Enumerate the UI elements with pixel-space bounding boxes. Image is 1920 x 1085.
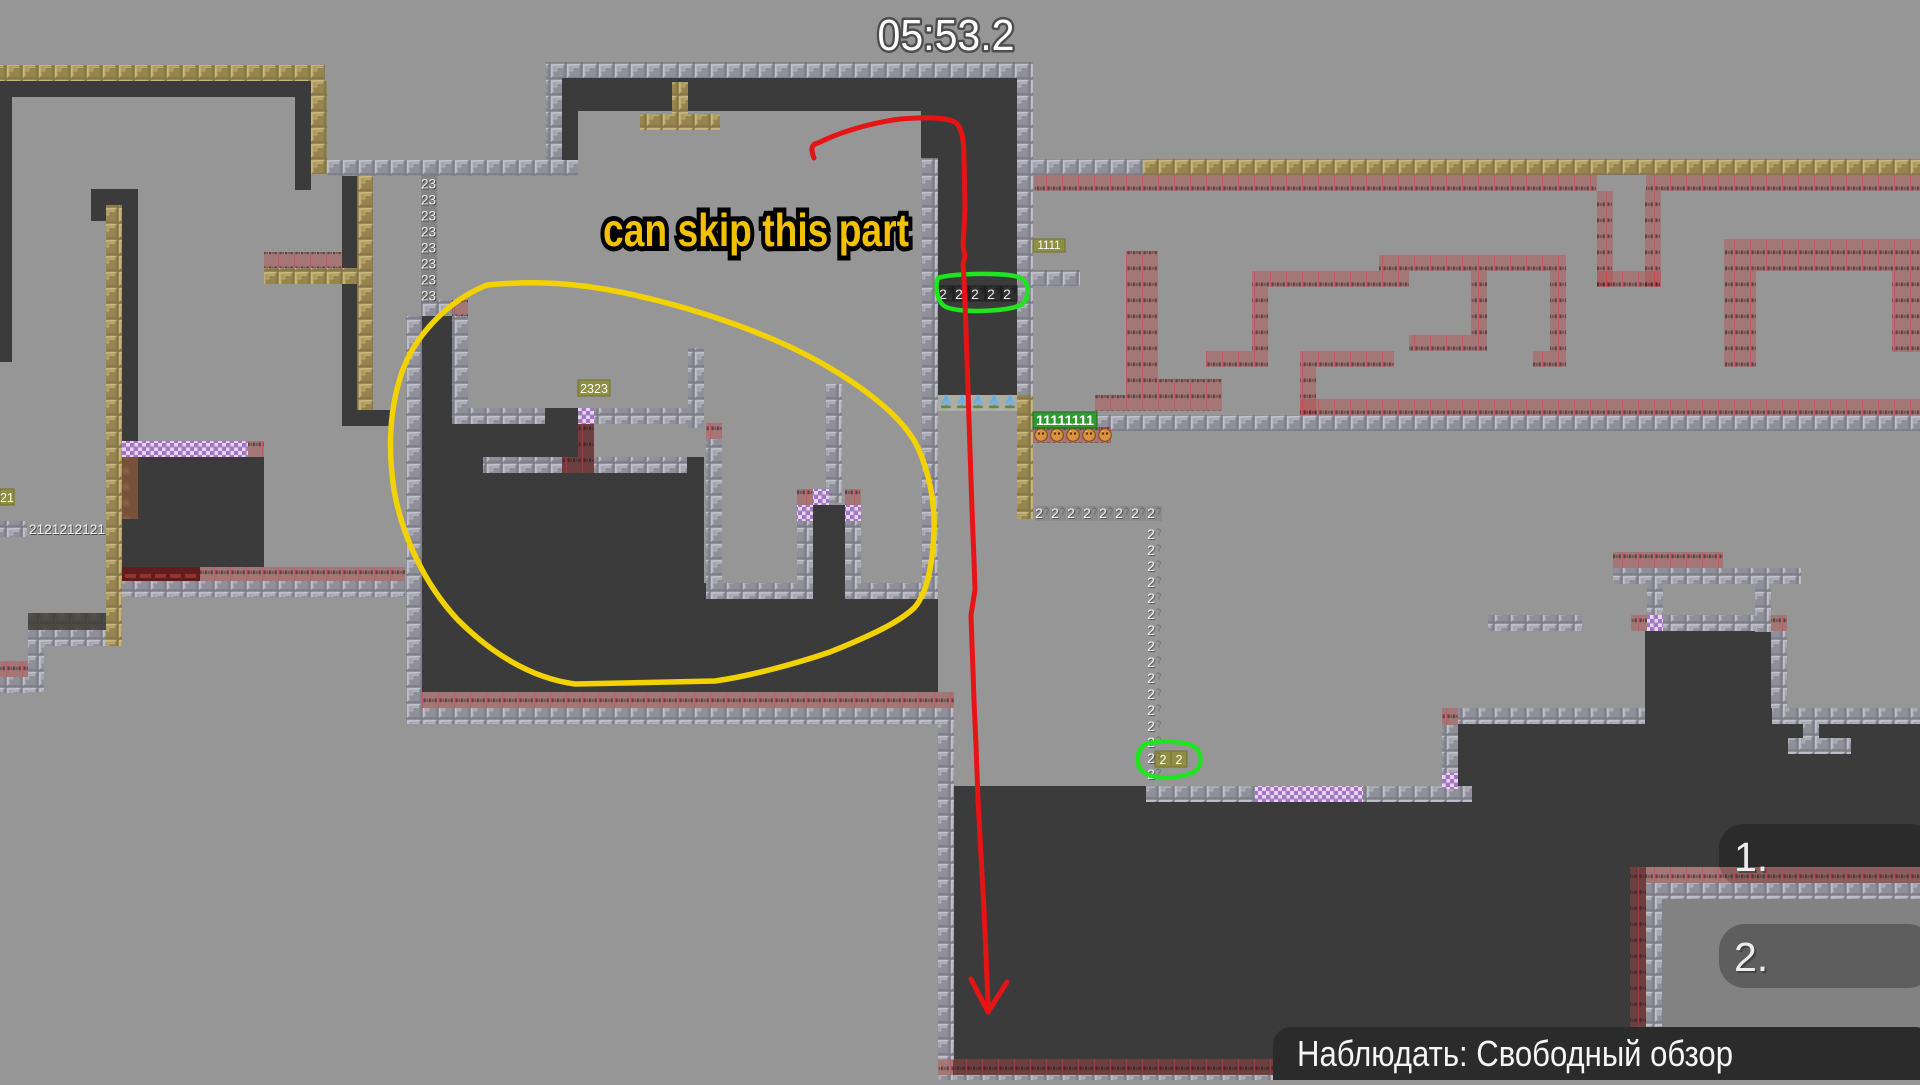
svg-text:2: 2 xyxy=(1067,505,1075,521)
svg-text:2: 2 xyxy=(1147,606,1155,622)
svg-text:2: 2 xyxy=(1051,505,1059,521)
svg-text:2: 2 xyxy=(971,286,979,302)
svg-text:2: 2 xyxy=(1083,505,1091,521)
svg-text:2: 2 xyxy=(1147,622,1155,638)
svg-text:2: 2 xyxy=(1003,286,1011,302)
svg-text:21: 21 xyxy=(0,491,14,505)
svg-text:2: 2 xyxy=(1147,702,1155,718)
svg-text:2: 2 xyxy=(1147,574,1155,590)
svg-text:1.: 1. xyxy=(1734,834,1768,880)
svg-text:23: 23 xyxy=(421,289,436,304)
svg-text:23: 23 xyxy=(421,225,436,240)
svg-text:2: 2 xyxy=(1131,505,1139,521)
svg-text:2: 2 xyxy=(1147,590,1155,606)
svg-text:11111111: 11111111 xyxy=(1036,413,1095,428)
svg-text:23: 23 xyxy=(421,273,436,288)
svg-text:2121212121: 2121212121 xyxy=(29,522,105,537)
svg-text:2: 2 xyxy=(1147,526,1155,542)
svg-text:2: 2 xyxy=(1147,718,1155,734)
svg-text:2: 2 xyxy=(987,286,995,302)
svg-text:2: 2 xyxy=(1035,505,1043,521)
svg-text:23: 23 xyxy=(421,209,436,224)
svg-text:23: 23 xyxy=(421,257,436,272)
svg-text:23: 23 xyxy=(421,241,436,256)
svg-text:23: 23 xyxy=(421,193,436,208)
svg-text:2: 2 xyxy=(1176,753,1183,767)
svg-text:2: 2 xyxy=(1147,750,1155,766)
svg-text:1111: 1111 xyxy=(1037,240,1060,252)
svg-text:can skip this part: can skip this part xyxy=(603,204,909,256)
svg-text:2: 2 xyxy=(1147,542,1155,558)
svg-text:Наблюдать: Свободный обзор: Наблюдать: Свободный обзор xyxy=(1297,1033,1733,1074)
svg-text:2: 2 xyxy=(1147,558,1155,574)
svg-text:2: 2 xyxy=(1147,670,1155,686)
svg-text:23: 23 xyxy=(421,177,436,192)
svg-text:2: 2 xyxy=(1099,505,1107,521)
svg-text:2323: 2323 xyxy=(580,382,608,396)
svg-text:2: 2 xyxy=(1147,638,1155,654)
svg-text:2: 2 xyxy=(1147,686,1155,702)
svg-text:2: 2 xyxy=(1147,654,1155,670)
svg-text:2: 2 xyxy=(1115,505,1123,521)
svg-text:2.: 2. xyxy=(1734,934,1768,980)
svg-text:2: 2 xyxy=(1147,505,1155,521)
svg-text:05:53.2: 05:53.2 xyxy=(878,11,1015,60)
